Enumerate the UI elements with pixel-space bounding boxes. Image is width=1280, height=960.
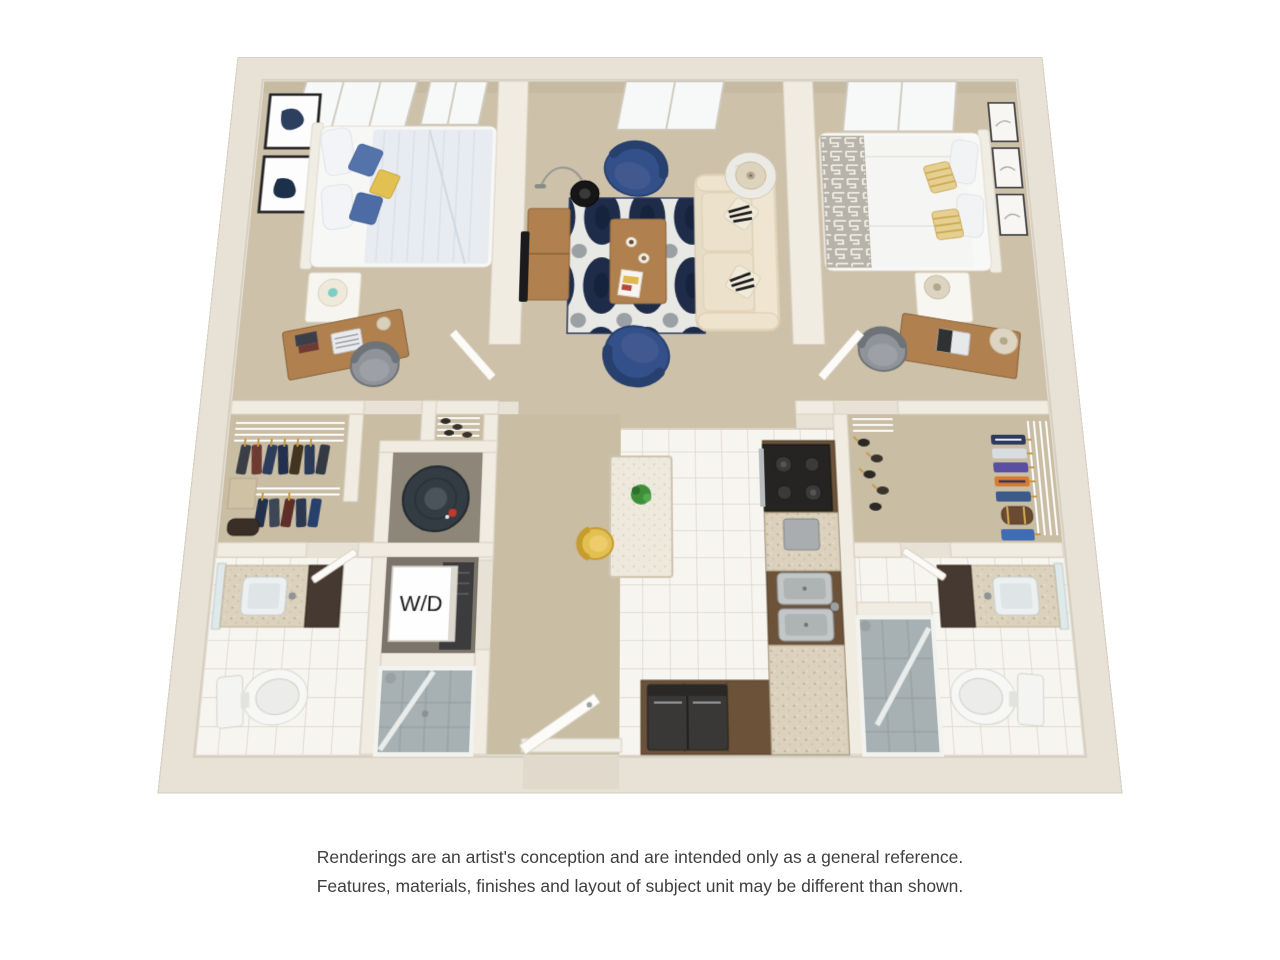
island-stool <box>578 528 614 559</box>
disclaimer-line-1: Renderings are an artist's conception an… <box>0 843 1280 872</box>
wall-bathL-top-a <box>216 543 307 558</box>
window-bedroom-right <box>840 81 961 131</box>
wall-waterheater-top <box>379 441 497 453</box>
sofa <box>694 174 781 332</box>
desk-chair-right <box>858 330 908 371</box>
nightstand-left <box>305 273 362 322</box>
floor-plan-rendering: W/D <box>157 57 1122 794</box>
wall-under-bedroomL-a <box>231 401 365 415</box>
bed-left <box>300 123 498 269</box>
disclaimer: Renderings are an artist's conception an… <box>0 843 1280 901</box>
wall-bathL-top-b <box>358 543 494 558</box>
tv-stand <box>526 208 571 299</box>
nightstand-right <box>915 273 974 322</box>
shower-right <box>858 617 942 754</box>
duffel-bag-left <box>227 519 260 535</box>
water-heater-closet <box>388 452 483 542</box>
wall-bathR-top-b <box>950 543 1063 558</box>
duffel-bag-right <box>1001 507 1033 524</box>
washer-dryer-closet: W/D <box>381 557 478 653</box>
window-living-room <box>617 81 725 129</box>
wall-under-bedroomR-a <box>795 401 834 415</box>
wall-shoe-nook <box>420 401 436 441</box>
windows <box>291 81 961 132</box>
floor-entry-hall <box>486 414 621 754</box>
pillow-white <box>321 183 355 230</box>
refrigerator <box>648 685 729 750</box>
coffee-table <box>610 219 667 304</box>
patterned-blanket <box>821 136 872 267</box>
magazine <box>618 270 643 298</box>
shower-left <box>375 668 474 754</box>
disclaimer-line-2: Features, materials, finishes and layout… <box>0 872 1280 901</box>
washer-dryer-label: W/D <box>399 592 443 617</box>
countertop-appliance <box>783 519 819 550</box>
wall-bathR-top-a <box>854 543 902 558</box>
island-plant <box>631 484 652 504</box>
bed-right <box>819 130 1002 273</box>
wall-wd-bottom <box>380 653 475 668</box>
vanity-right <box>937 563 1069 629</box>
wall-under-bedroomR-b <box>898 401 1050 415</box>
storage-box <box>227 478 257 508</box>
range-stove <box>759 445 833 511</box>
wall-showerR-top <box>857 602 933 617</box>
